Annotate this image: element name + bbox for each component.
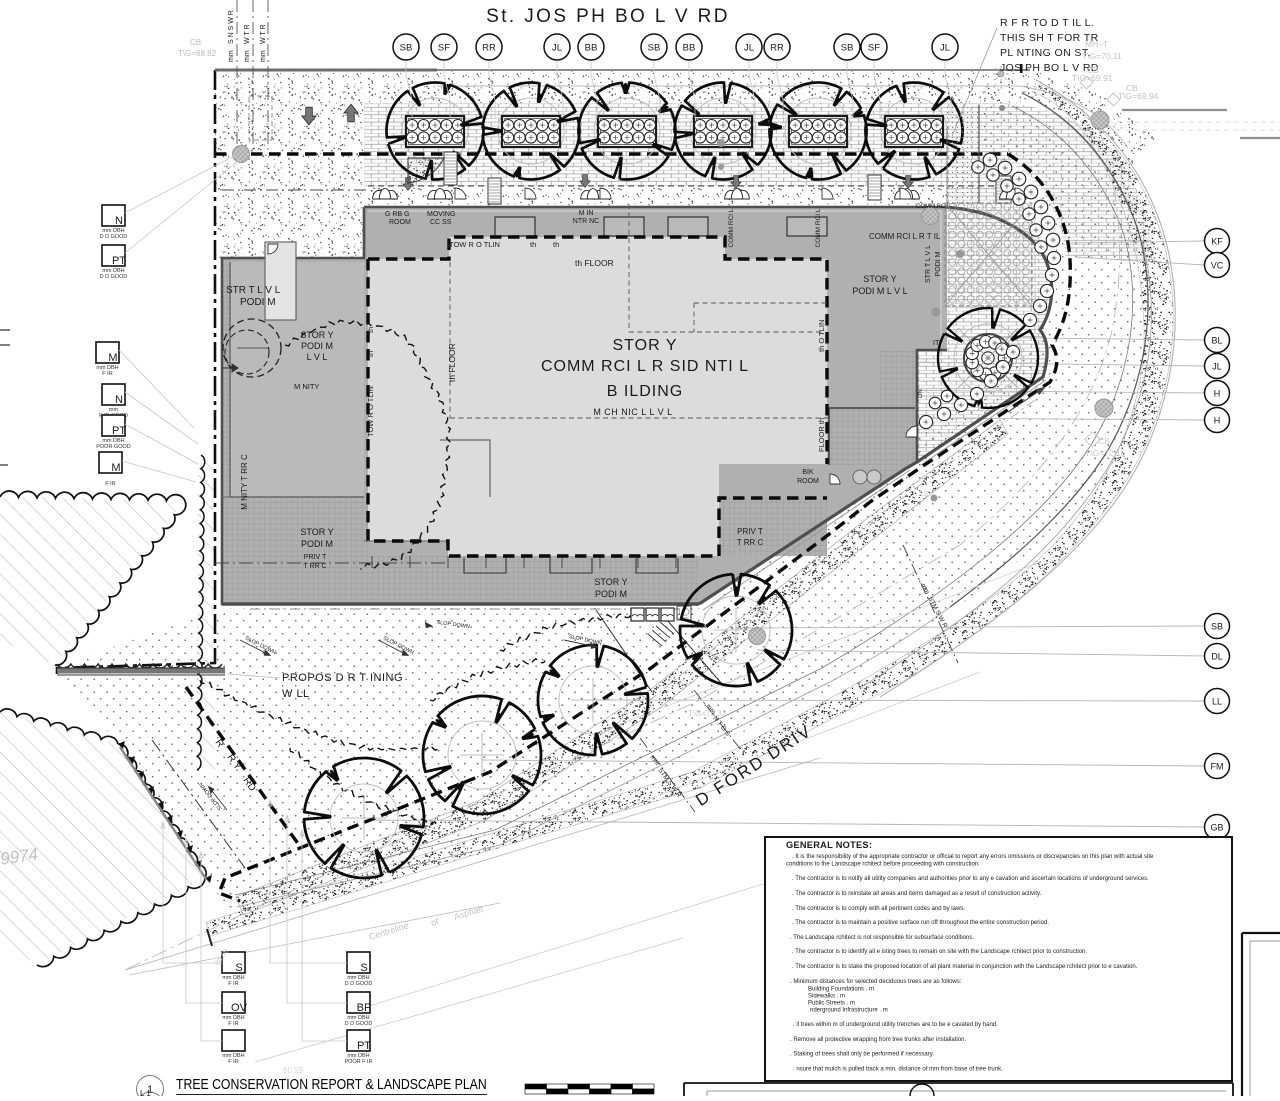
- svg-text:th: th: [553, 240, 559, 249]
- svg-text:PL NTING ON ST.: PL NTING ON ST.: [1000, 47, 1091, 59]
- svg-text:BIK: BIK: [802, 469, 814, 476]
- svg-text:60.59: 60.59: [283, 1066, 304, 1075]
- svg-text:CC SS: CC SS: [430, 219, 452, 226]
- svg-text:SB: SB: [400, 42, 413, 53]
- svg-text:W T R: W T R: [244, 24, 251, 44]
- svg-text:T\G=70.11: T\G=70.11: [1082, 51, 1122, 61]
- svg-text:PROPOS D R T INING: PROPOS D R T INING: [282, 672, 403, 684]
- svg-text:CB: CB: [1098, 436, 1110, 446]
- svg-text:COMM RCI L R T IL: COMM RCI L R T IL: [869, 232, 941, 241]
- svg-text:F IR: F IR: [102, 371, 112, 377]
- svg-text:RR: RR: [482, 42, 496, 53]
- svg-text:PODI M L V L: PODI M L V L: [852, 286, 907, 296]
- svg-text:VC: VC: [1211, 260, 1224, 270]
- svg-text:BB: BB: [585, 42, 598, 53]
- svg-text:nderground Infrastructure .: nderground Infrastructure . m: [810, 1008, 888, 1014]
- svg-text:L 1: L 1: [140, 1089, 151, 1096]
- svg-text:R F R TO D T IL L.: R F R TO D T IL L.: [1000, 17, 1094, 29]
- svg-text:th: th: [366, 327, 375, 333]
- svg-text:. The contractor is to maintai: . The contractor is to maintain a positi…: [792, 920, 1049, 926]
- svg-text:th FLOOR: th FLOOR: [575, 258, 614, 268]
- svg-text:Building Foundations . m: Building Foundations . m: [808, 987, 874, 993]
- svg-text:COMM RCI L R SID NTI L: COMM RCI L R SID NTI L: [541, 358, 749, 375]
- svg-text:STR T L V L: STR T L V L: [226, 285, 281, 296]
- svg-text:St. JOS PH BO L V RD: St. JOS PH BO L V RD: [486, 6, 730, 27]
- svg-text:M: M: [108, 352, 117, 364]
- svg-text:TREE CONSERVATION REPORT & LAN: TREE CONSERVATION REPORT & LANDSCAPE PLA…: [176, 1076, 487, 1092]
- svg-text:SB: SB: [648, 42, 661, 53]
- svg-text:COMM RCI L: COMM RCI L: [728, 208, 735, 247]
- svg-text:THIS SH T FOR TR: THIS SH T FOR TR: [1000, 32, 1099, 44]
- svg-text:T\G=68.82: T\G=68.82: [178, 49, 217, 58]
- svg-text:PODI M: PODI M: [301, 341, 333, 351]
- svg-text:SB: SB: [1211, 621, 1223, 631]
- svg-text:. Minimum distances for select: . Minimum distances for selected deciduo…: [790, 979, 962, 985]
- svg-text:G RB G: G RB G: [385, 211, 410, 218]
- svg-text:SF: SF: [438, 42, 450, 53]
- svg-text:W T R: W T R: [260, 24, 267, 44]
- svg-text:DL: DL: [1211, 651, 1223, 661]
- svg-text:th FLOOR: th FLOOR: [447, 343, 457, 382]
- svg-text:F IR: F IR: [228, 1059, 238, 1065]
- svg-text:STOR Y: STOR Y: [300, 330, 333, 340]
- svg-text:T RR C: T RR C: [737, 538, 764, 547]
- svg-text:W LL: W LL: [282, 688, 310, 700]
- svg-text:th O TLIN: th O TLIN: [817, 320, 826, 352]
- svg-text:CB: CB: [190, 38, 201, 47]
- svg-text:LS: LS: [920, 491, 929, 498]
- svg-text:th: th: [530, 240, 536, 249]
- svg-text:Sidewalks . m: Sidewalks . m: [808, 994, 845, 1000]
- svg-text:th: th: [366, 351, 375, 357]
- svg-text:LL: LL: [1212, 696, 1222, 706]
- svg-text:. The contractor is to identif: . The contractor is to identify all e is…: [792, 949, 1087, 955]
- svg-text:OV: OV: [231, 1002, 248, 1014]
- svg-text:B ILDING: B ILDING: [607, 383, 683, 400]
- svg-text:DN: DN: [918, 389, 924, 398]
- svg-text:Public Streets . m: Public Streets . m: [808, 1001, 855, 1007]
- svg-text:. The contractor is to notify: . The contractor is to notify all utilit…: [792, 876, 1149, 882]
- svg-text:D D GOOD: D D GOOD: [100, 274, 128, 280]
- svg-text:T\G=72.15: T\G=72.15: [1085, 448, 1126, 458]
- svg-text:F IR: F IR: [105, 481, 115, 487]
- svg-text:TOW R O TLIN: TOW R O TLIN: [449, 240, 500, 249]
- svg-text:. The Landscape rchitect is: . The Landscape rchitect is not responsi…: [790, 935, 974, 941]
- svg-text:N: N: [115, 394, 123, 406]
- svg-text:H: H: [1214, 415, 1221, 425]
- svg-text:RR: RR: [770, 42, 784, 53]
- svg-text:STOR Y: STOR Y: [863, 274, 896, 284]
- svg-text:FM: FM: [1211, 761, 1224, 771]
- svg-text:. Remove all protective wrappi: . Remove all protective wrapping from tr…: [790, 1037, 966, 1043]
- svg-text:ROOM: ROOM: [797, 478, 819, 485]
- svg-text:JL: JL: [552, 42, 562, 53]
- svg-text:H: H: [1214, 388, 1221, 398]
- svg-text:D D GOOD: D D GOOD: [345, 1021, 373, 1027]
- svg-text:M IN: M IN: [579, 210, 594, 217]
- svg-text:COMM RCI L: COMM RCI L: [815, 208, 822, 247]
- svg-text:BP: BP: [357, 1002, 372, 1014]
- svg-text:KF: KF: [1211, 236, 1223, 246]
- svg-text:GENERAL NOTES:: GENERAL NOTES:: [786, 840, 872, 850]
- svg-text:D D GOOD: D D GOOD: [100, 234, 128, 240]
- svg-text:POOR F IR: POOR F IR: [344, 1059, 372, 1065]
- svg-text:PRIV T: PRIV T: [737, 527, 763, 536]
- svg-text:mm: mm: [244, 50, 251, 62]
- svg-text:MH–T: MH–T: [1085, 39, 1108, 49]
- svg-text:. The contractor is to stake t: . The contractor is to stake the propose…: [792, 964, 1138, 970]
- svg-text:STOR Y: STOR Y: [613, 337, 678, 354]
- svg-text:SB: SB: [841, 42, 854, 53]
- svg-text:. Staking of trees shall only: . Staking of trees shall only be perform…: [790, 1052, 934, 1058]
- svg-text:JL: JL: [940, 42, 950, 53]
- svg-text:PODI M: PODI M: [595, 589, 627, 599]
- svg-text:JL: JL: [744, 42, 754, 53]
- svg-text:M: M: [111, 462, 120, 474]
- svg-text:JL: JL: [1212, 361, 1222, 371]
- svg-text:M NITY: M NITY: [294, 382, 319, 391]
- svg-text:STR T L V L: STR T L V L: [925, 245, 932, 283]
- svg-text:ROOM: ROOM: [389, 219, 411, 226]
- svg-text:F IR: F IR: [228, 981, 238, 987]
- svg-text:S: S: [360, 962, 367, 974]
- svg-text:PT: PT: [357, 1040, 371, 1052]
- svg-text:. The contractor is to comply: . The contractor is to comply with all p…: [792, 906, 965, 912]
- svg-text:FLOOR th: FLOOR th: [817, 418, 826, 452]
- svg-text:SF: SF: [868, 42, 880, 53]
- svg-text:GB: GB: [1210, 822, 1223, 832]
- svg-text:M NITY T RR C: M NITY T RR C: [240, 454, 249, 510]
- svg-text:mm: mm: [228, 50, 235, 62]
- svg-text:PODI M: PODI M: [301, 539, 333, 549]
- svg-text:T RR C: T RR C: [303, 563, 326, 570]
- svg-text:conditions to the Landscape: conditions to the Landscape rchitect bef…: [786, 862, 980, 868]
- svg-text:MOVING: MOVING: [427, 211, 455, 218]
- svg-text:T\G=69.94: T\G=69.94: [1118, 91, 1159, 101]
- svg-text:T\G=76.32: T\G=76.32: [688, 709, 727, 718]
- svg-text:S N S W R: S N S W R: [228, 10, 235, 44]
- svg-text:. nsure that mulch is pulled: . nsure that mulch is pulled back a min.…: [793, 1067, 1003, 1073]
- svg-text:STOR Y: STOR Y: [300, 527, 333, 537]
- svg-text:mm: mm: [260, 50, 267, 62]
- svg-text:. It is the responsibility of: . It is the responsibility of the approp…: [792, 854, 1154, 860]
- svg-text:M CH NIC L L V L: M CH NIC L L V L: [593, 407, 672, 417]
- svg-text:STOR Y: STOR Y: [594, 577, 627, 587]
- svg-text:PT: PT: [112, 425, 126, 437]
- svg-text:PRIV T: PRIV T: [304, 554, 327, 561]
- svg-text:BB: BB: [683, 42, 696, 53]
- svg-text:. ll trees within m of und: . ll trees within m of underground utili…: [793, 1022, 998, 1028]
- svg-text:D D GOOD: D D GOOD: [345, 981, 373, 987]
- svg-text:NTR NC: NTR NC: [573, 218, 599, 225]
- svg-text:F IR: F IR: [228, 1021, 238, 1027]
- svg-text:BL: BL: [1211, 335, 1222, 345]
- svg-text:TOW R O TLIN: TOW R O TLIN: [366, 386, 375, 437]
- svg-text:POOR GOOD: POOR GOOD: [96, 444, 131, 450]
- svg-text:PT: PT: [112, 255, 126, 267]
- svg-text:N: N: [115, 215, 123, 227]
- svg-text:PODI M: PODI M: [935, 251, 942, 276]
- svg-text:. The contractor is to reinsta: . The contractor is to reinstate all are…: [792, 891, 1042, 897]
- svg-text:PODI M: PODI M: [240, 297, 276, 308]
- svg-text:S: S: [235, 962, 242, 974]
- svg-text:L V L: L V L: [307, 352, 328, 362]
